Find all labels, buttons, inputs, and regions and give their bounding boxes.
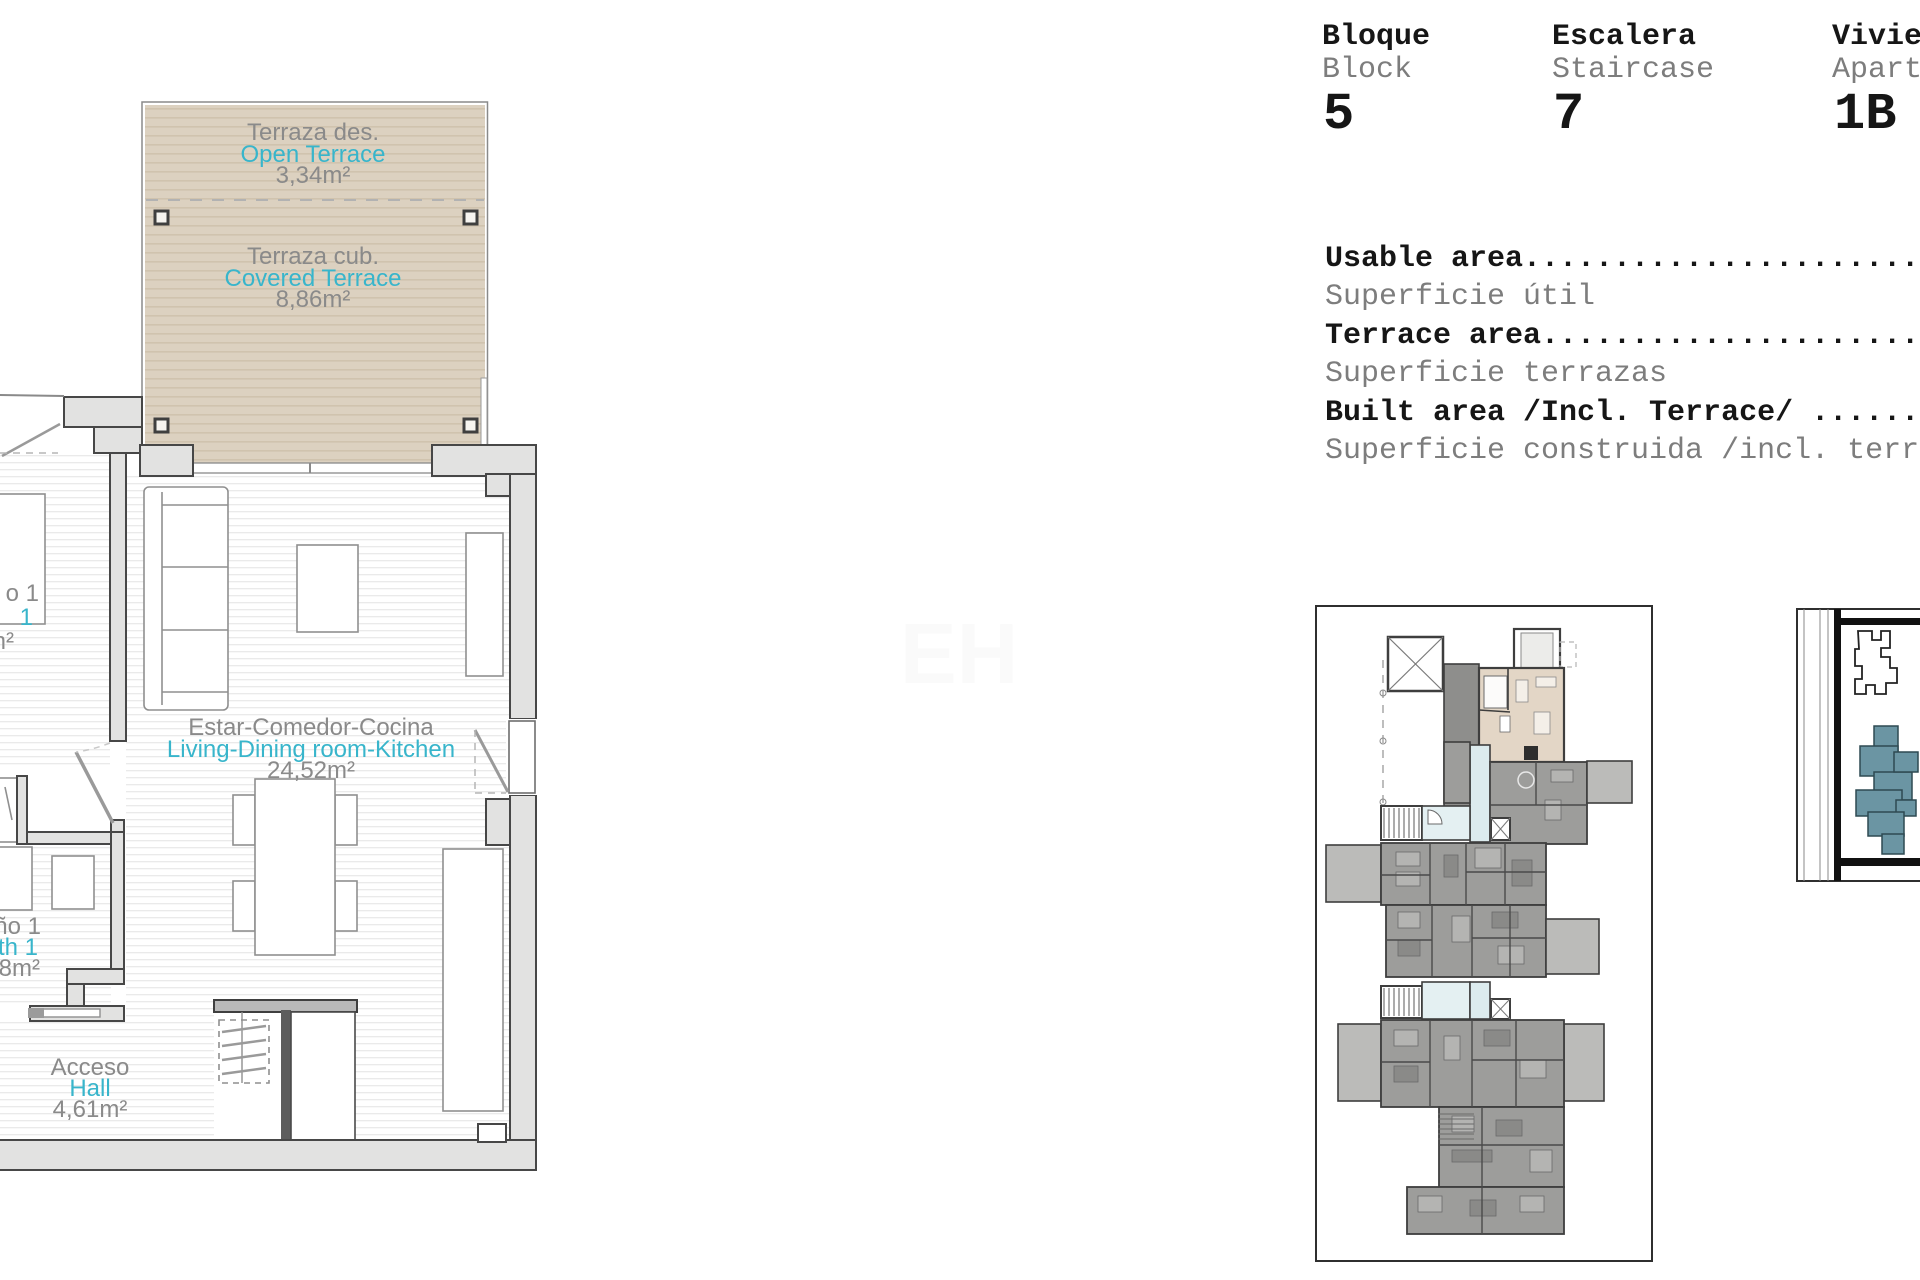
svg-text:Usable area...................: Usable area.............................…: [1325, 242, 1920, 276]
svg-text:Escalera: Escalera: [1552, 20, 1696, 54]
svg-text:1: 1: [20, 604, 33, 631]
svg-text:Built area /Incl. Terrace/ ...: Built area /Incl. Terrace/ .............…: [1325, 396, 1920, 430]
svg-text:Superficie útil: Superficie útil: [1325, 280, 1595, 314]
svg-text:Block: Block: [1322, 53, 1412, 87]
svg-text:4,61m²: 4,61m²: [53, 1096, 128, 1123]
svg-text:5: 5: [1323, 85, 1354, 144]
svg-text:Terrace area..................: Terrace area............................…: [1325, 319, 1920, 353]
svg-text:EH: EH: [900, 607, 1018, 702]
svg-text:Superficie terrazas: Superficie terrazas: [1325, 357, 1667, 391]
svg-text:3,34m²: 3,34m²: [276, 162, 351, 189]
svg-text:Vivienda: Vivienda: [1832, 20, 1920, 54]
svg-text:o 1: o 1: [6, 580, 39, 607]
svg-text:8,86m²: 8,86m²: [276, 286, 351, 313]
svg-text:Apartment: Apartment: [1832, 53, 1920, 87]
svg-text:Bloque: Bloque: [1322, 20, 1430, 54]
svg-text:1B: 1B: [1834, 85, 1896, 144]
svg-text:24,52m²: 24,52m²: [267, 757, 355, 784]
svg-text:7: 7: [1553, 85, 1584, 144]
svg-text:m²: m²: [0, 628, 14, 655]
svg-text:8m²: 8m²: [0, 955, 40, 982]
svg-text:Superficie construida /incl. t: Superficie construida /incl. terraza/: [1325, 434, 1920, 468]
svg-text:Staircase: Staircase: [1552, 53, 1714, 87]
